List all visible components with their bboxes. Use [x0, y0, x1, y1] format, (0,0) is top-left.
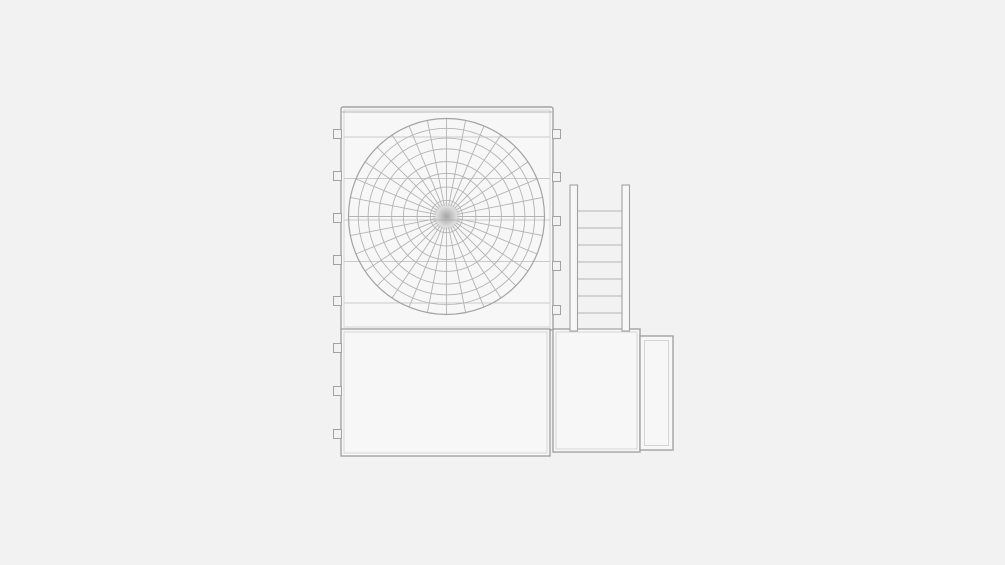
end-panel: [640, 336, 673, 450]
mounting-tab-left: [334, 430, 342, 439]
mounting-tab-right: [553, 306, 561, 315]
mounting-tab-left: [334, 256, 342, 265]
mounting-tab-right: [553, 262, 561, 271]
mounting-tab-left: [334, 344, 342, 353]
fan-guard: [349, 119, 545, 315]
ladder-rail: [570, 185, 578, 331]
base-housing: [341, 329, 550, 456]
service-ladder: [570, 185, 630, 331]
side-housing: [553, 329, 640, 452]
drawing-canvas: [0, 0, 1005, 565]
side-housing-face: [553, 329, 640, 452]
condensing-unit-drawing: [0, 0, 1005, 565]
mounting-tab-left: [334, 387, 342, 396]
base-housing-face: [341, 329, 550, 456]
ladder-rail: [622, 185, 630, 331]
mounting-tab-left: [334, 214, 342, 223]
mounting-tab-left: [334, 130, 342, 139]
mounting-tab-left: [334, 297, 342, 306]
mounting-tab-right: [553, 130, 561, 139]
mounting-tab-right: [553, 217, 561, 226]
fan-hub: [432, 202, 462, 232]
mounting-tab-left: [334, 172, 342, 181]
mounting-tab-right: [553, 173, 561, 182]
